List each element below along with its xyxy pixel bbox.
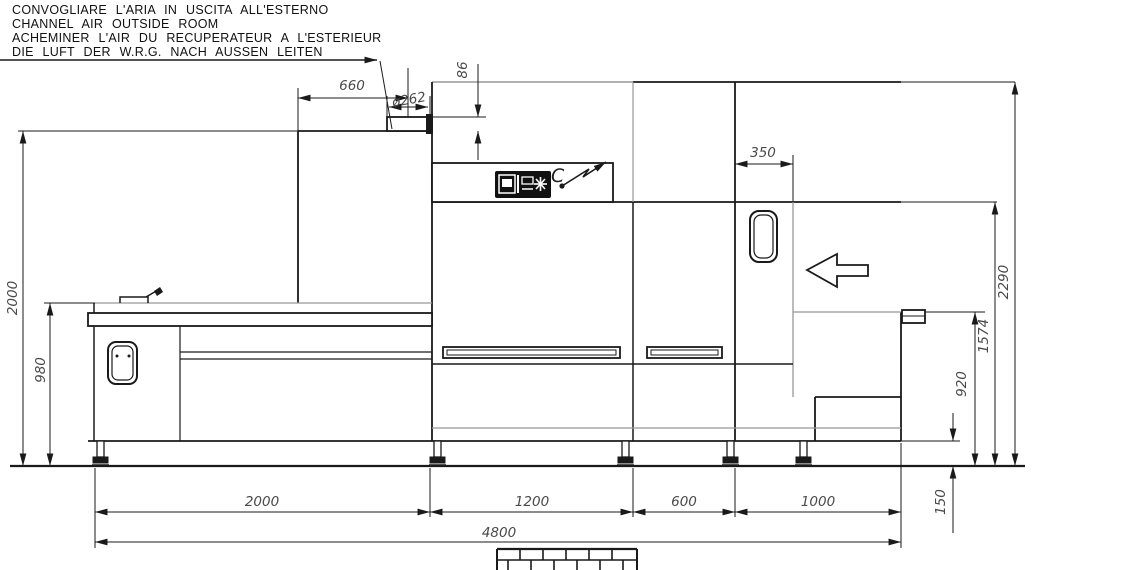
dim-rinse-section-length: 600 <box>671 494 697 510</box>
dim-overall-height: 2290 <box>996 265 1012 299</box>
dim-exit-table-height: 920 <box>954 371 970 397</box>
technical-drawing-sheet: CONVOGLIARE L'ARIA IN USCITA ALL'ESTERNO… <box>0 0 1128 570</box>
gear-icon <box>534 177 547 191</box>
machine-foot <box>722 441 739 465</box>
note-leader <box>0 60 392 129</box>
exhaust-duct-stub <box>387 117 430 131</box>
drawing-geometry: C <box>0 0 1128 570</box>
dim-exit-section-length: 1000 <box>801 494 835 510</box>
cabinet-handle-screw <box>128 355 131 358</box>
adjustable-feet <box>92 441 812 465</box>
cabinet-handle-screw <box>116 355 119 358</box>
machine-foot <box>92 441 109 465</box>
dim-wash-section-length: 1200 <box>515 494 549 510</box>
dim-overall-length: 4800 <box>482 525 516 541</box>
table-fitting-head <box>154 287 163 296</box>
dim-duct-offset: 660 <box>339 78 365 94</box>
connection-label: C <box>551 165 565 187</box>
dim-plinth-height: 150 <box>933 489 949 515</box>
dimension-labels: 660 ø262 86 350 2000 980 2290 1574 920 1… <box>5 61 1012 541</box>
dim-tunnel-top-height: 1574 <box>976 319 992 353</box>
machine-foot <box>617 441 634 465</box>
dim-left-structure-height: 2000 <box>5 281 21 315</box>
dim-entry-table-height: 980 <box>33 357 49 383</box>
dim-duct-stub-height: 86 <box>455 61 471 78</box>
wall-hatch <box>497 549 637 570</box>
table-front-edge <box>88 313 432 326</box>
dim-exit-opening: 350 <box>750 145 776 161</box>
dimensions <box>23 64 1015 548</box>
table-fitting-icon <box>120 290 158 303</box>
display-screen-icon <box>502 179 512 187</box>
machine-outline <box>10 82 1025 466</box>
machine-foot <box>795 441 812 465</box>
machine-foot <box>429 441 446 465</box>
control-panel[interactable] <box>495 171 551 198</box>
travel-direction-arrow-icon <box>807 254 868 287</box>
dim-entry-section-length: 2000 <box>245 494 279 510</box>
rinse-door-handle[interactable] <box>647 347 722 358</box>
wash-door-handle[interactable] <box>443 347 620 358</box>
dim-duct-diameter: ø262 <box>390 89 427 111</box>
